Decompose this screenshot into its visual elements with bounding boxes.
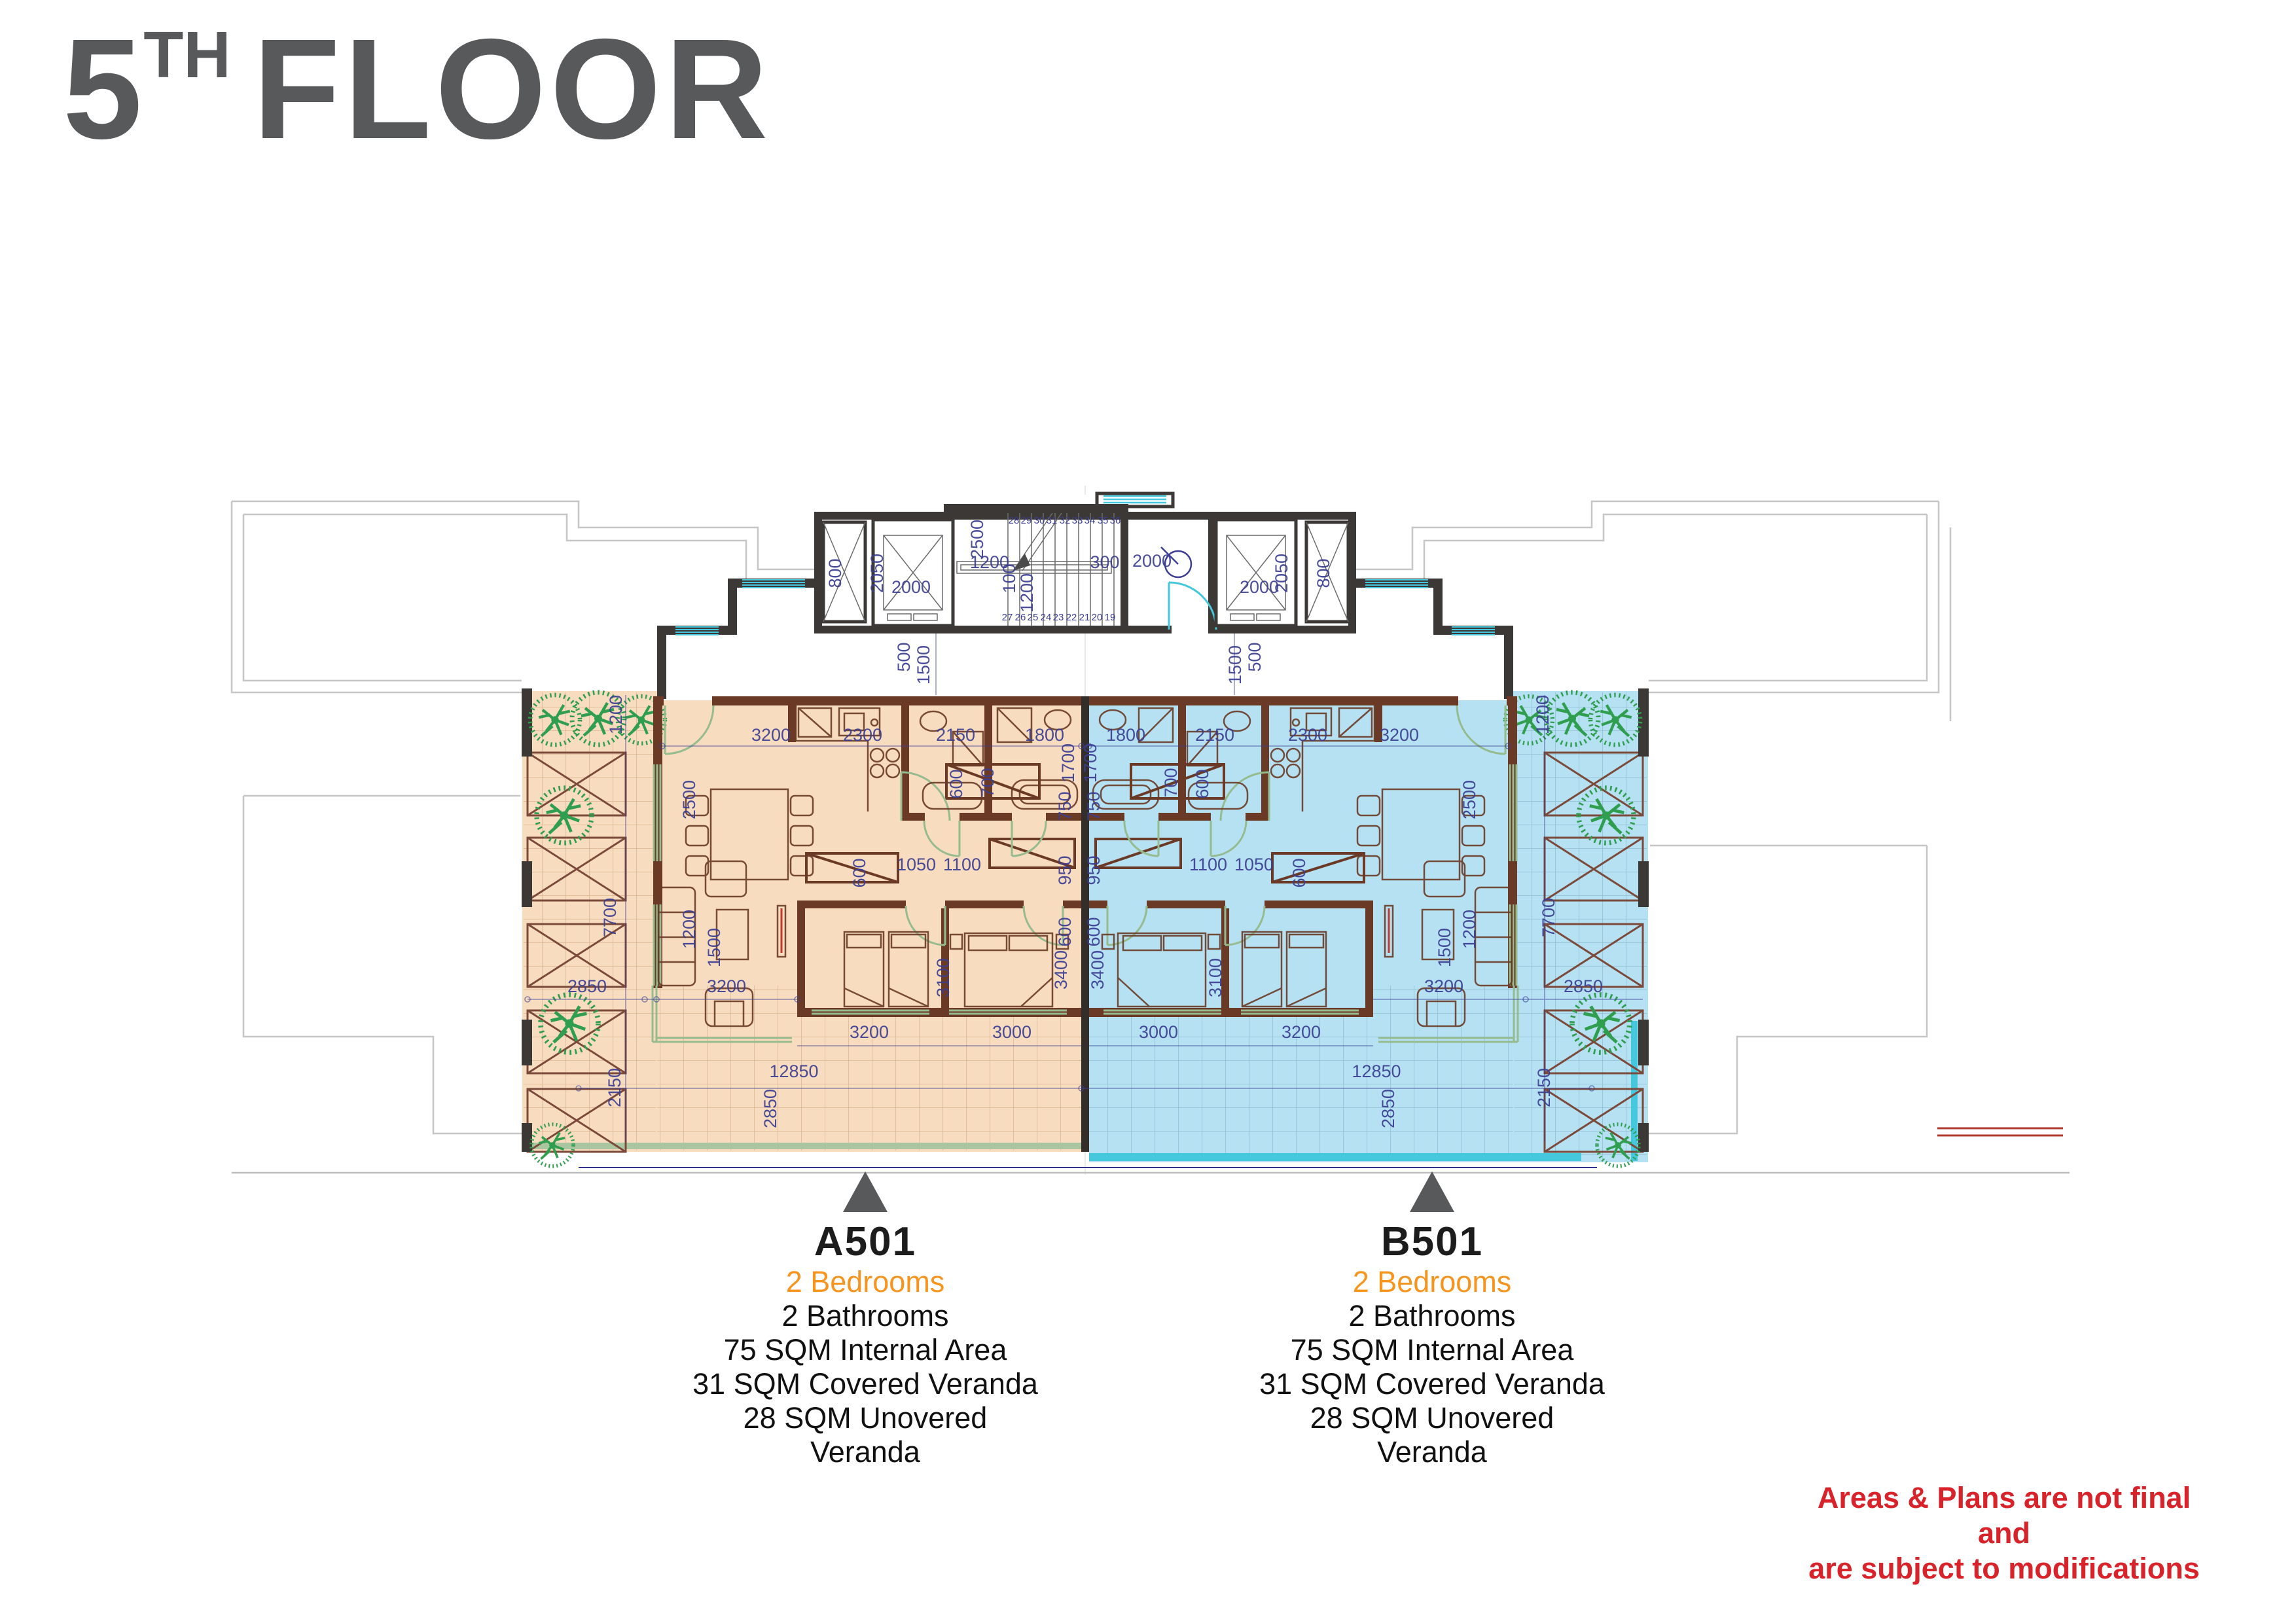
svg-text:1100: 1100 [943,855,981,874]
unit-a-label: A501 [689,1219,1042,1265]
svg-text:2050: 2050 [867,554,887,593]
svg-text:1800: 1800 [1025,725,1064,745]
svg-text:3400: 3400 [1088,950,1107,990]
svg-text:3200: 3200 [707,976,746,996]
svg-text:2500: 2500 [1460,780,1479,819]
svg-text:1800: 1800 [1106,725,1145,745]
svg-text:3200: 3200 [1282,1022,1321,1042]
svg-text:2150: 2150 [1195,725,1234,745]
unit-b-bedrooms: 2 Bedrooms [1255,1265,1609,1299]
svg-text:21: 21 [1079,612,1090,623]
core-connector-right [1356,579,1513,699]
svg-text:1100: 1100 [1189,855,1227,874]
svg-text:950: 950 [1084,855,1103,885]
svg-text:2850: 2850 [567,976,607,996]
svg-text:23: 23 [1053,612,1064,623]
svg-text:2850: 2850 [761,1089,780,1128]
svg-text:800: 800 [1314,558,1333,588]
unit-a-bedrooms: 2 Bedrooms [689,1265,1042,1299]
svg-text:29: 29 [1021,515,1032,526]
svg-text:1200: 1200 [1460,910,1479,949]
svg-text:600: 600 [1084,917,1103,946]
svg-text:2850: 2850 [1564,976,1603,996]
unit-a-covered-veranda: 31 SQM Covered Veranda [689,1367,1042,1401]
svg-text:950: 950 [1055,855,1075,885]
svg-text:3400: 3400 [1051,950,1071,990]
svg-text:1700: 1700 [1081,743,1100,783]
svg-text:7700: 7700 [600,898,620,937]
svg-text:30: 30 [1034,515,1045,526]
floor-plan-page: 5THFLOOR [0,0,2296,1623]
svg-text:2300: 2300 [843,725,882,745]
svg-text:12850: 12850 [769,1061,818,1081]
svg-text:700: 700 [1161,768,1181,797]
floor-plan-canvas: 3200230021501800250012001050110070017006… [0,0,2296,1623]
svg-text:500: 500 [1245,642,1265,671]
svg-text:36: 36 [1110,515,1121,526]
unit-a-internal-area: 75 SQM Internal Area [689,1333,1042,1367]
svg-text:600: 600 [946,769,966,798]
svg-text:3200: 3200 [1380,725,1419,745]
unit-b-uncovered-veranda: 28 SQM Unovered Veranda [1255,1401,1609,1469]
svg-text:750: 750 [1084,791,1103,821]
svg-text:27: 27 [1002,612,1013,623]
svg-text:3000: 3000 [1139,1022,1178,1042]
unit-b-marker-triangle [1410,1171,1454,1212]
svg-text:1200: 1200 [1017,573,1037,613]
svg-text:2000: 2000 [1240,577,1279,597]
svg-text:2150: 2150 [605,1068,624,1107]
svg-text:12850: 12850 [1352,1061,1401,1081]
svg-text:3200: 3200 [751,725,791,745]
svg-text:2500: 2500 [679,780,699,819]
unit-b-card: B501 2 Bedrooms 2 Bathrooms 75 SQM Inter… [1255,1171,1609,1469]
svg-text:3100: 3100 [933,958,953,997]
svg-text:600: 600 [1055,917,1075,946]
svg-text:1500: 1500 [704,928,724,967]
unit-a-edge-band [524,1143,1081,1149]
svg-text:7700: 7700 [1539,898,1558,937]
svg-text:1200: 1200 [1533,695,1552,734]
svg-text:3200: 3200 [850,1022,889,1042]
svg-text:3000: 3000 [992,1022,1031,1042]
svg-text:1500: 1500 [1435,928,1454,967]
unit-a-uncovered-veranda: 28 SQM Unovered Veranda [689,1401,1042,1469]
unit-a-bathrooms: 2 Bathrooms [689,1299,1042,1333]
disclaimer-line-2: are subject to modifications [1795,1551,2214,1586]
svg-text:1050: 1050 [1234,855,1274,874]
core-connector-left [657,579,814,699]
svg-text:500: 500 [894,642,914,671]
svg-text:26: 26 [1015,612,1026,623]
svg-text:31: 31 [1047,515,1058,526]
svg-text:2000: 2000 [1132,551,1172,571]
svg-text:1200: 1200 [679,910,699,949]
svg-text:1500: 1500 [1225,645,1245,685]
disclaimer: Areas & Plans are not final and are subj… [1795,1480,2214,1586]
unit-a-marker-triangle [843,1171,888,1212]
disclaimer-line-1: Areas & Plans are not final and [1795,1480,2214,1551]
svg-text:20: 20 [1092,612,1103,623]
svg-text:2850: 2850 [1378,1089,1398,1128]
svg-text:35: 35 [1098,515,1109,526]
svg-text:750: 750 [1055,791,1075,821]
svg-text:600: 600 [1193,769,1212,798]
svg-text:22: 22 [1066,612,1077,623]
unit-b-label: B501 [1255,1219,1609,1265]
svg-text:100: 100 [999,563,1019,593]
svg-text:25: 25 [1028,612,1039,623]
svg-text:600: 600 [1289,858,1309,887]
unit-b-bathrooms: 2 Bathrooms [1255,1299,1609,1333]
unit-b-internal-area: 75 SQM Internal Area [1255,1333,1609,1367]
svg-text:2000: 2000 [891,577,931,597]
svg-text:2300: 2300 [1288,725,1327,745]
svg-text:34: 34 [1085,515,1096,526]
svg-text:28: 28 [1009,515,1020,526]
boundary-red-line [1937,1128,2063,1135]
svg-text:600: 600 [850,858,869,887]
svg-text:1700: 1700 [1058,743,1078,783]
svg-text:2150: 2150 [1534,1068,1554,1107]
unit-b-edge-band [1089,1153,1581,1161]
svg-text:1200: 1200 [606,695,626,734]
svg-text:24: 24 [1041,612,1052,623]
svg-text:300: 300 [1090,552,1119,572]
svg-text:33: 33 [1072,515,1083,526]
svg-text:1500: 1500 [914,645,933,685]
unit-a-card: A501 2 Bedrooms 2 Bathrooms 75 SQM Inter… [689,1171,1042,1469]
svg-text:19: 19 [1105,612,1116,623]
svg-text:800: 800 [825,558,845,588]
svg-text:32: 32 [1060,515,1071,526]
svg-text:3100: 3100 [1206,958,1225,997]
svg-text:2150: 2150 [936,725,975,745]
svg-text:700: 700 [978,768,997,797]
svg-text:1050: 1050 [897,855,936,874]
svg-text:3200: 3200 [1424,976,1463,996]
unit-b-covered-veranda: 31 SQM Covered Veranda [1255,1367,1609,1401]
